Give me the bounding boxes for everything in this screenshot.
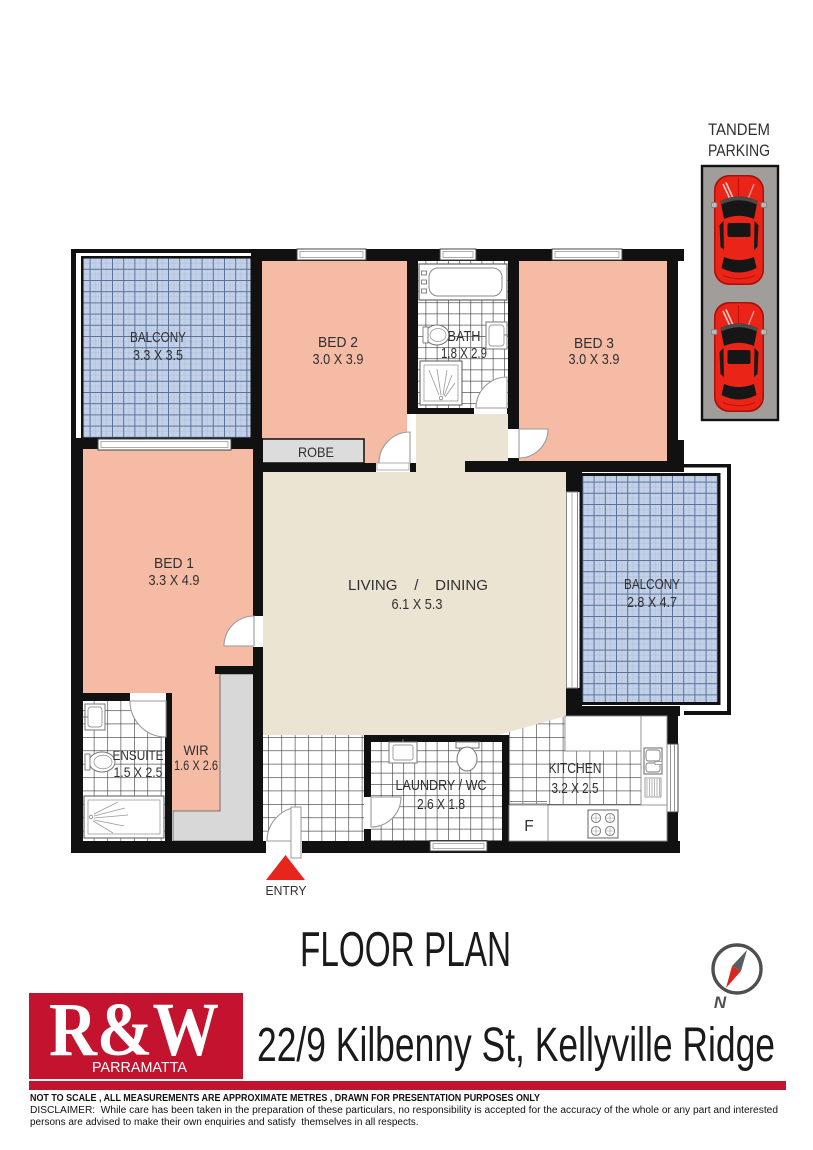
svg-text:ENSUITE: ENSUITE xyxy=(113,748,164,763)
svg-text:BED 1: BED 1 xyxy=(154,555,194,572)
svg-text:BALCONY: BALCONY xyxy=(130,329,186,346)
svg-text:LAUNDRY / WC: LAUNDRY / WC xyxy=(396,778,487,794)
svg-text:persons are advised to make th: persons are advised to make their own en… xyxy=(30,1117,419,1128)
svg-text:KITCHEN: KITCHEN xyxy=(549,761,602,777)
svg-text:3.3 X 3.5: 3.3 X 3.5 xyxy=(133,347,183,364)
svg-text:ROBE: ROBE xyxy=(298,444,334,460)
svg-text:22/9 Kilbenny St, Kellyville R: 22/9 Kilbenny St, Kellyville Ridge xyxy=(257,1019,775,1072)
svg-text:BATH: BATH xyxy=(448,328,481,345)
svg-text:2.8 X 4.7: 2.8 X 4.7 xyxy=(627,594,677,611)
svg-text:DISCLAIMER: While care has be: DISCLAIMER: While care has been taken in… xyxy=(30,1105,778,1116)
svg-text:WIR: WIR xyxy=(184,743,209,758)
svg-text:PARRAMATTA: PARRAMATTA xyxy=(92,1059,187,1076)
svg-text:LIVING / DINING: LIVING / DINING xyxy=(348,577,488,594)
svg-text:6.1 X 5.3: 6.1 X 5.3 xyxy=(392,596,443,613)
svg-text:BED 2: BED 2 xyxy=(318,334,358,351)
svg-text:3.0 X 3.9: 3.0 X 3.9 xyxy=(569,351,620,368)
svg-text:N: N xyxy=(714,993,727,1012)
svg-text:3.0 X 3.9: 3.0 X 3.9 xyxy=(313,351,364,368)
svg-text:1.5 X 2.5: 1.5 X 2.5 xyxy=(114,765,163,780)
svg-text:F: F xyxy=(524,818,533,835)
svg-text:1.6 X 2.6: 1.6 X 2.6 xyxy=(174,758,218,773)
svg-text:TANDEM: TANDEM xyxy=(708,120,770,139)
svg-text:NOT TO SCALE , ALL MEASUREMENT: NOT TO SCALE , ALL MEASUREMENTS ARE APPR… xyxy=(30,1093,540,1104)
svg-text:BED 3: BED 3 xyxy=(574,335,614,352)
svg-text:1.8 X 2.9: 1.8 X 2.9 xyxy=(441,345,487,362)
svg-text:FLOOR PLAN: FLOOR PLAN xyxy=(300,923,511,977)
svg-text:BALCONY: BALCONY xyxy=(624,576,680,593)
svg-text:PARKING: PARKING xyxy=(708,141,770,160)
svg-text:ENTRY: ENTRY xyxy=(266,884,308,898)
svg-text:2.6 X 1.8: 2.6 X 1.8 xyxy=(417,797,465,813)
svg-text:3.3 X 4.9: 3.3 X 4.9 xyxy=(149,572,200,589)
svg-text:3.2 X 2.5: 3.2 X 2.5 xyxy=(552,781,599,797)
